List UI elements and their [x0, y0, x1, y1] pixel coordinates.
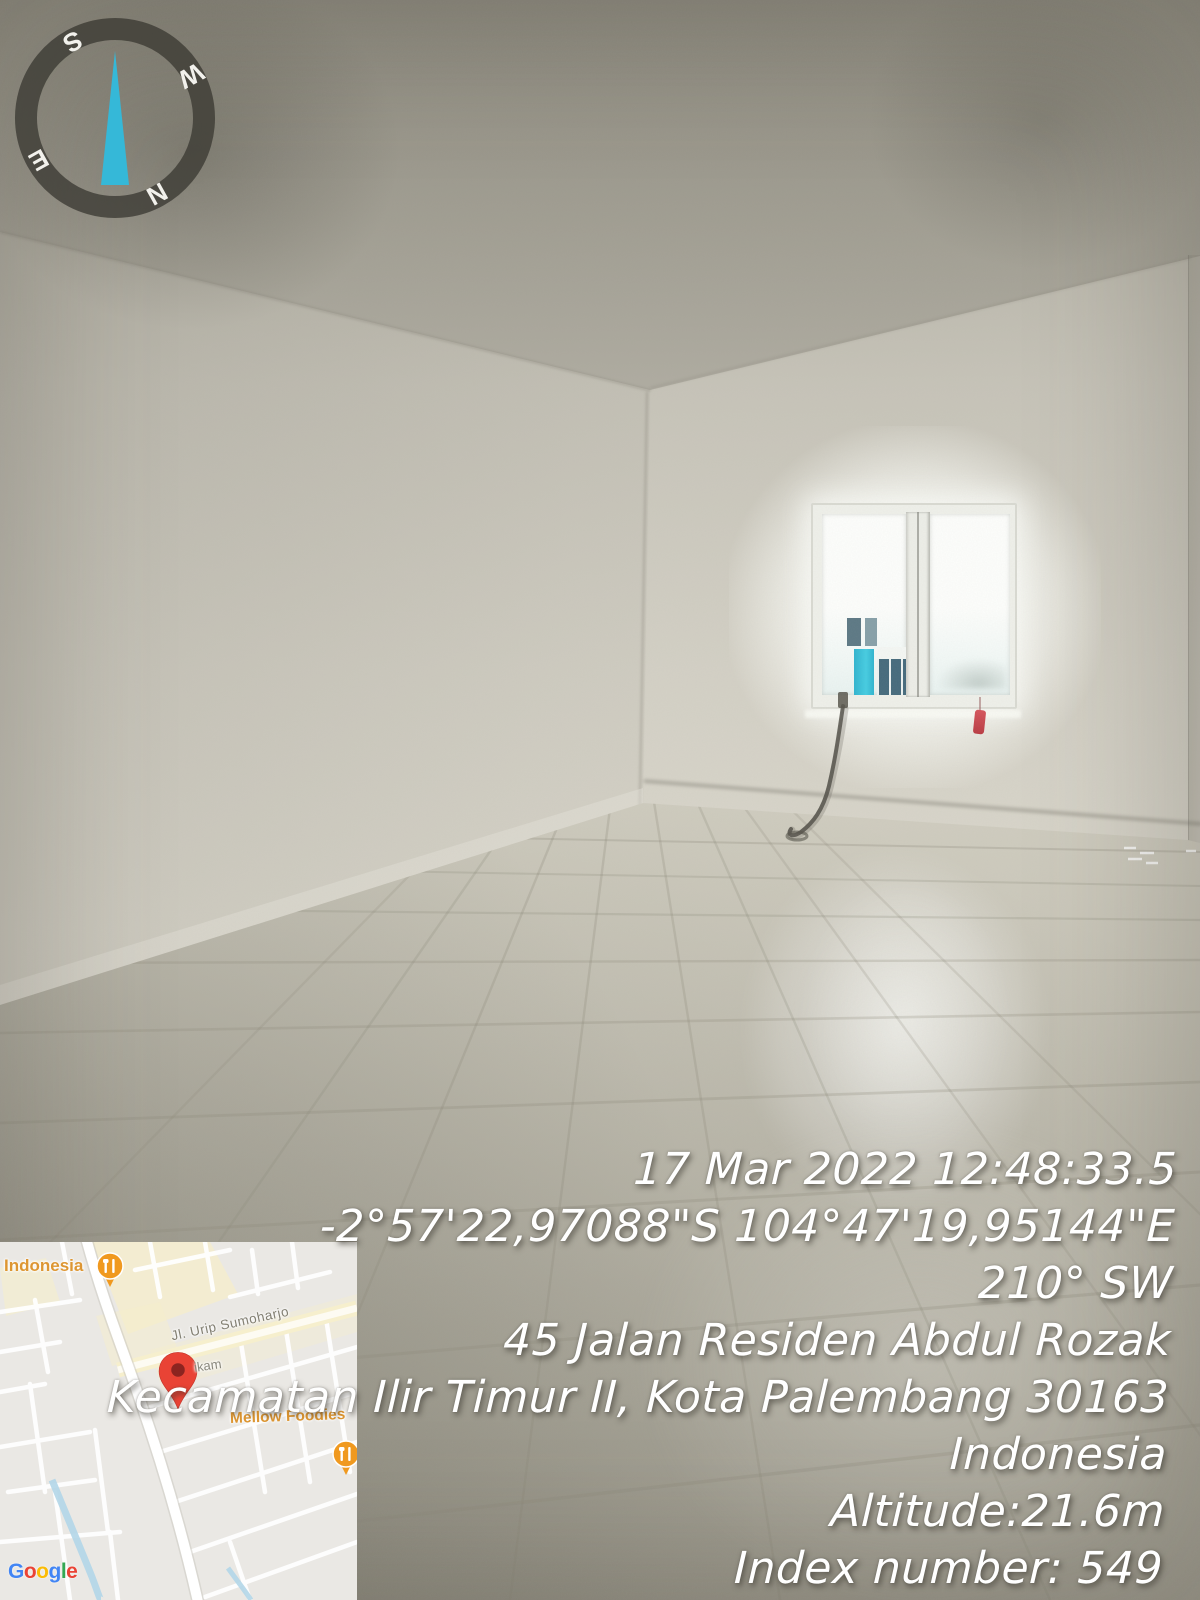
overlay-line-heading: 210° SW: [12, 1255, 1174, 1312]
overlay-line-datetime: 17 Mar 2022 12:48:33.5: [16, 1141, 1178, 1198]
overlay-line-index: Index number: 549: [2, 1540, 1164, 1597]
compass-letter-s: S: [52, 22, 93, 63]
overlay-line-address1: 45 Jalan Residen Abdul Rozak: [10, 1312, 1172, 1369]
compass-letter-n: N: [137, 174, 178, 215]
compass-needle: [101, 51, 129, 185]
gps-camera-photo: N E S W: [0, 0, 1200, 1600]
compass-letter-w: W: [171, 55, 212, 96]
compass-letter-e: E: [19, 140, 60, 181]
compass-widget: N E S W: [15, 18, 215, 218]
overlay-line-coordinates: -2°57'22,97088"S 104°47'19,95144"E: [14, 1198, 1176, 1255]
overlay-line-altitude: Altitude:21.6m: [4, 1483, 1166, 1540]
gps-overlay-text: 17 Mar 2022 12:48:33.5 -2°57'22,97088"S …: [2, 1141, 1178, 1597]
overlay-line-country: Indonesia: [6, 1426, 1168, 1483]
overlay-line-address2: Kecamatan Ilir Timur II, Kota Palembang …: [8, 1369, 1170, 1426]
